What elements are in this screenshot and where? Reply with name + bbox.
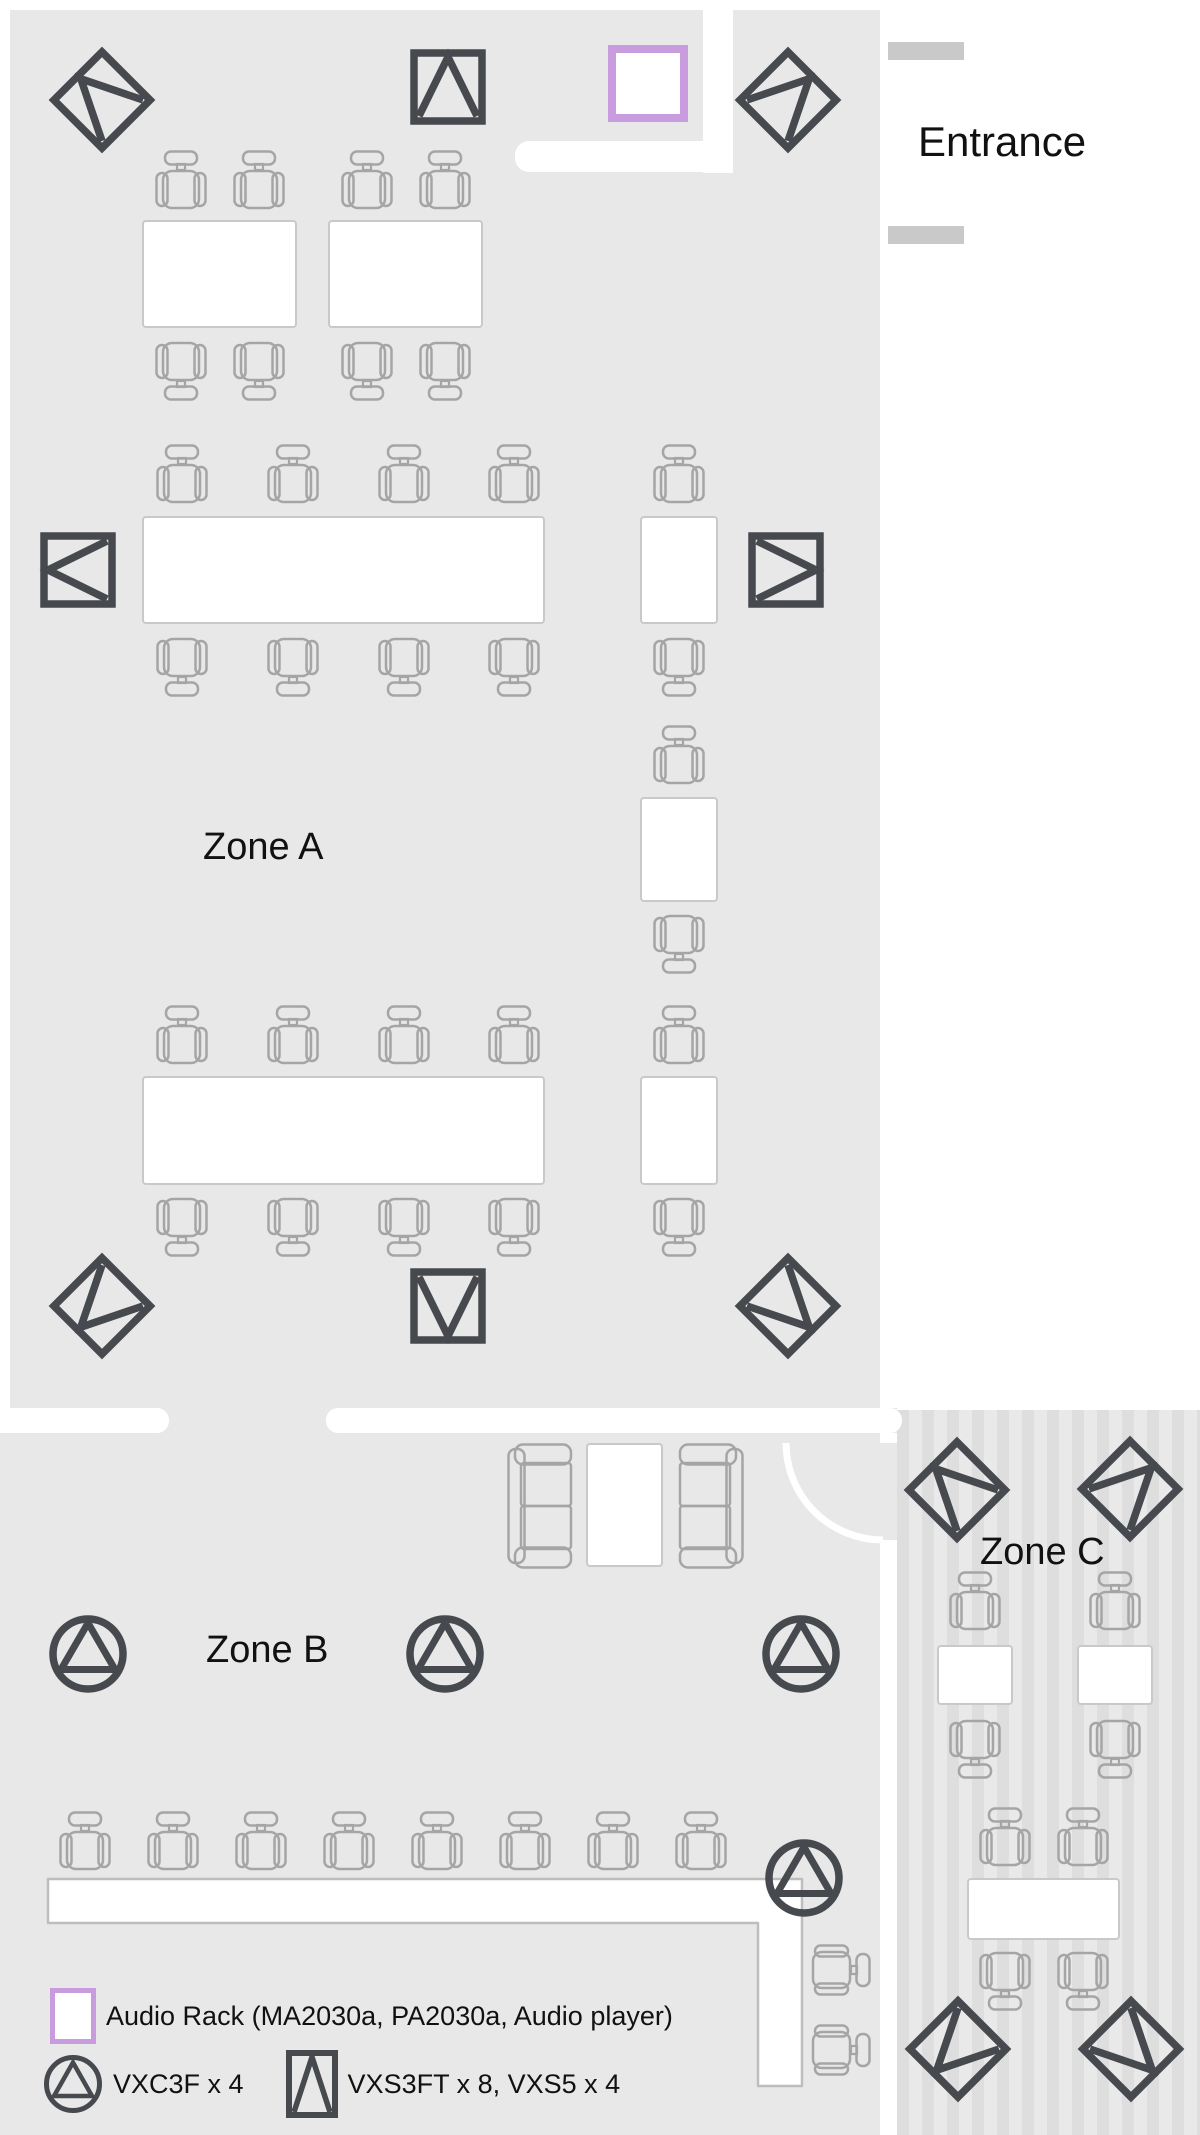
speaker-vxs — [410, 49, 486, 125]
chair — [488, 1005, 540, 1065]
sofa — [678, 1443, 744, 1569]
audio-rack — [608, 45, 688, 122]
sofa — [507, 1443, 573, 1569]
speaker-vxc — [405, 1614, 485, 1694]
chair — [653, 1005, 705, 1065]
zone-a-label: Zone A — [203, 828, 323, 866]
chair — [419, 341, 471, 401]
chair — [147, 1811, 199, 1871]
chair — [675, 1811, 727, 1871]
table — [142, 220, 297, 328]
table — [640, 797, 718, 902]
chair — [267, 1197, 319, 1257]
chair — [811, 1944, 871, 1996]
chair — [156, 444, 208, 504]
chair — [1057, 1951, 1109, 2011]
speaker-vxc — [48, 1614, 128, 1694]
chair — [949, 1719, 1001, 1779]
table — [1077, 1645, 1153, 1705]
chair — [156, 637, 208, 697]
chair — [233, 341, 285, 401]
chair — [1089, 1719, 1141, 1779]
chair — [267, 637, 319, 697]
chair — [811, 2024, 871, 2076]
chair — [979, 1807, 1031, 1867]
chair — [233, 150, 285, 210]
chair — [653, 444, 705, 504]
chair — [1057, 1807, 1109, 1867]
entrance-opening-horizontal — [515, 141, 733, 172]
speaker-vxs — [410, 1268, 486, 1344]
chair — [411, 1811, 463, 1871]
table — [328, 220, 483, 328]
chair — [499, 1811, 551, 1871]
table — [640, 516, 718, 624]
chair — [653, 914, 705, 974]
chair — [341, 150, 393, 210]
chair — [156, 1005, 208, 1065]
table — [142, 1076, 545, 1185]
chair — [267, 1005, 319, 1065]
chair — [156, 1197, 208, 1257]
chair — [155, 341, 207, 401]
entrance-label: Entrance — [918, 121, 1086, 163]
chair — [378, 1197, 430, 1257]
wall-segment — [0, 1408, 169, 1433]
chair — [587, 1811, 639, 1871]
door-post — [888, 42, 964, 60]
table — [937, 1645, 1013, 1705]
table — [967, 1878, 1120, 1940]
table — [142, 516, 545, 624]
speaker-vxs — [748, 532, 824, 608]
chair — [949, 1571, 1001, 1631]
chair — [155, 150, 207, 210]
counter — [40, 1870, 810, 2095]
zone-c-label: Zone C — [980, 1533, 1105, 1571]
chair — [488, 1197, 540, 1257]
floor-plan: Entrance Zone A Zone B Zone C Audio Rack… — [0, 0, 1200, 2135]
wall-segment — [326, 1408, 902, 1433]
chair — [653, 637, 705, 697]
door-arc-icon — [778, 1439, 890, 1549]
table — [640, 1076, 718, 1185]
chair — [59, 1811, 111, 1871]
chair — [488, 637, 540, 697]
chair — [378, 444, 430, 504]
chair — [341, 341, 393, 401]
chair — [488, 444, 540, 504]
chair — [235, 1811, 287, 1871]
chair — [653, 1197, 705, 1257]
table — [586, 1443, 663, 1567]
chair — [323, 1811, 375, 1871]
zone-b-label: Zone B — [206, 1631, 329, 1669]
chair — [419, 150, 471, 210]
speaker-vxc — [761, 1614, 841, 1694]
chair — [1089, 1571, 1141, 1631]
chair — [979, 1951, 1031, 2011]
speaker-vxs — [40, 532, 116, 608]
chair — [267, 444, 319, 504]
chair — [653, 725, 705, 785]
speaker-vxc — [764, 1838, 844, 1918]
chair — [378, 637, 430, 697]
door-post — [888, 226, 964, 244]
chair — [378, 1005, 430, 1065]
